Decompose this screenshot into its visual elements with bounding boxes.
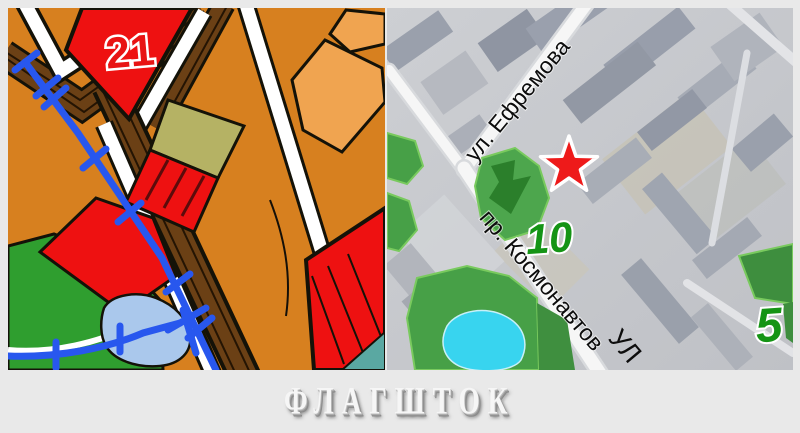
zoning-map-graphic: 21: [8, 8, 385, 370]
satellite-map-image: ул. Ефремова пр. Космонавтов УЛ 10 5: [387, 8, 793, 370]
number-label-10: 10: [524, 213, 574, 263]
brand-footer: ФЛАГШТОК: [0, 379, 800, 421]
flyer-page: 21: [0, 0, 800, 433]
parcel-number-label: 21: [103, 25, 156, 78]
brand-title: ФЛАГШТОК: [284, 379, 515, 423]
zoning-map-image: 21: [8, 8, 385, 370]
number-label-5: 5: [754, 299, 786, 354]
satellite-map-graphic: ул. Ефремова пр. Космонавтов УЛ 10 5: [387, 8, 793, 370]
